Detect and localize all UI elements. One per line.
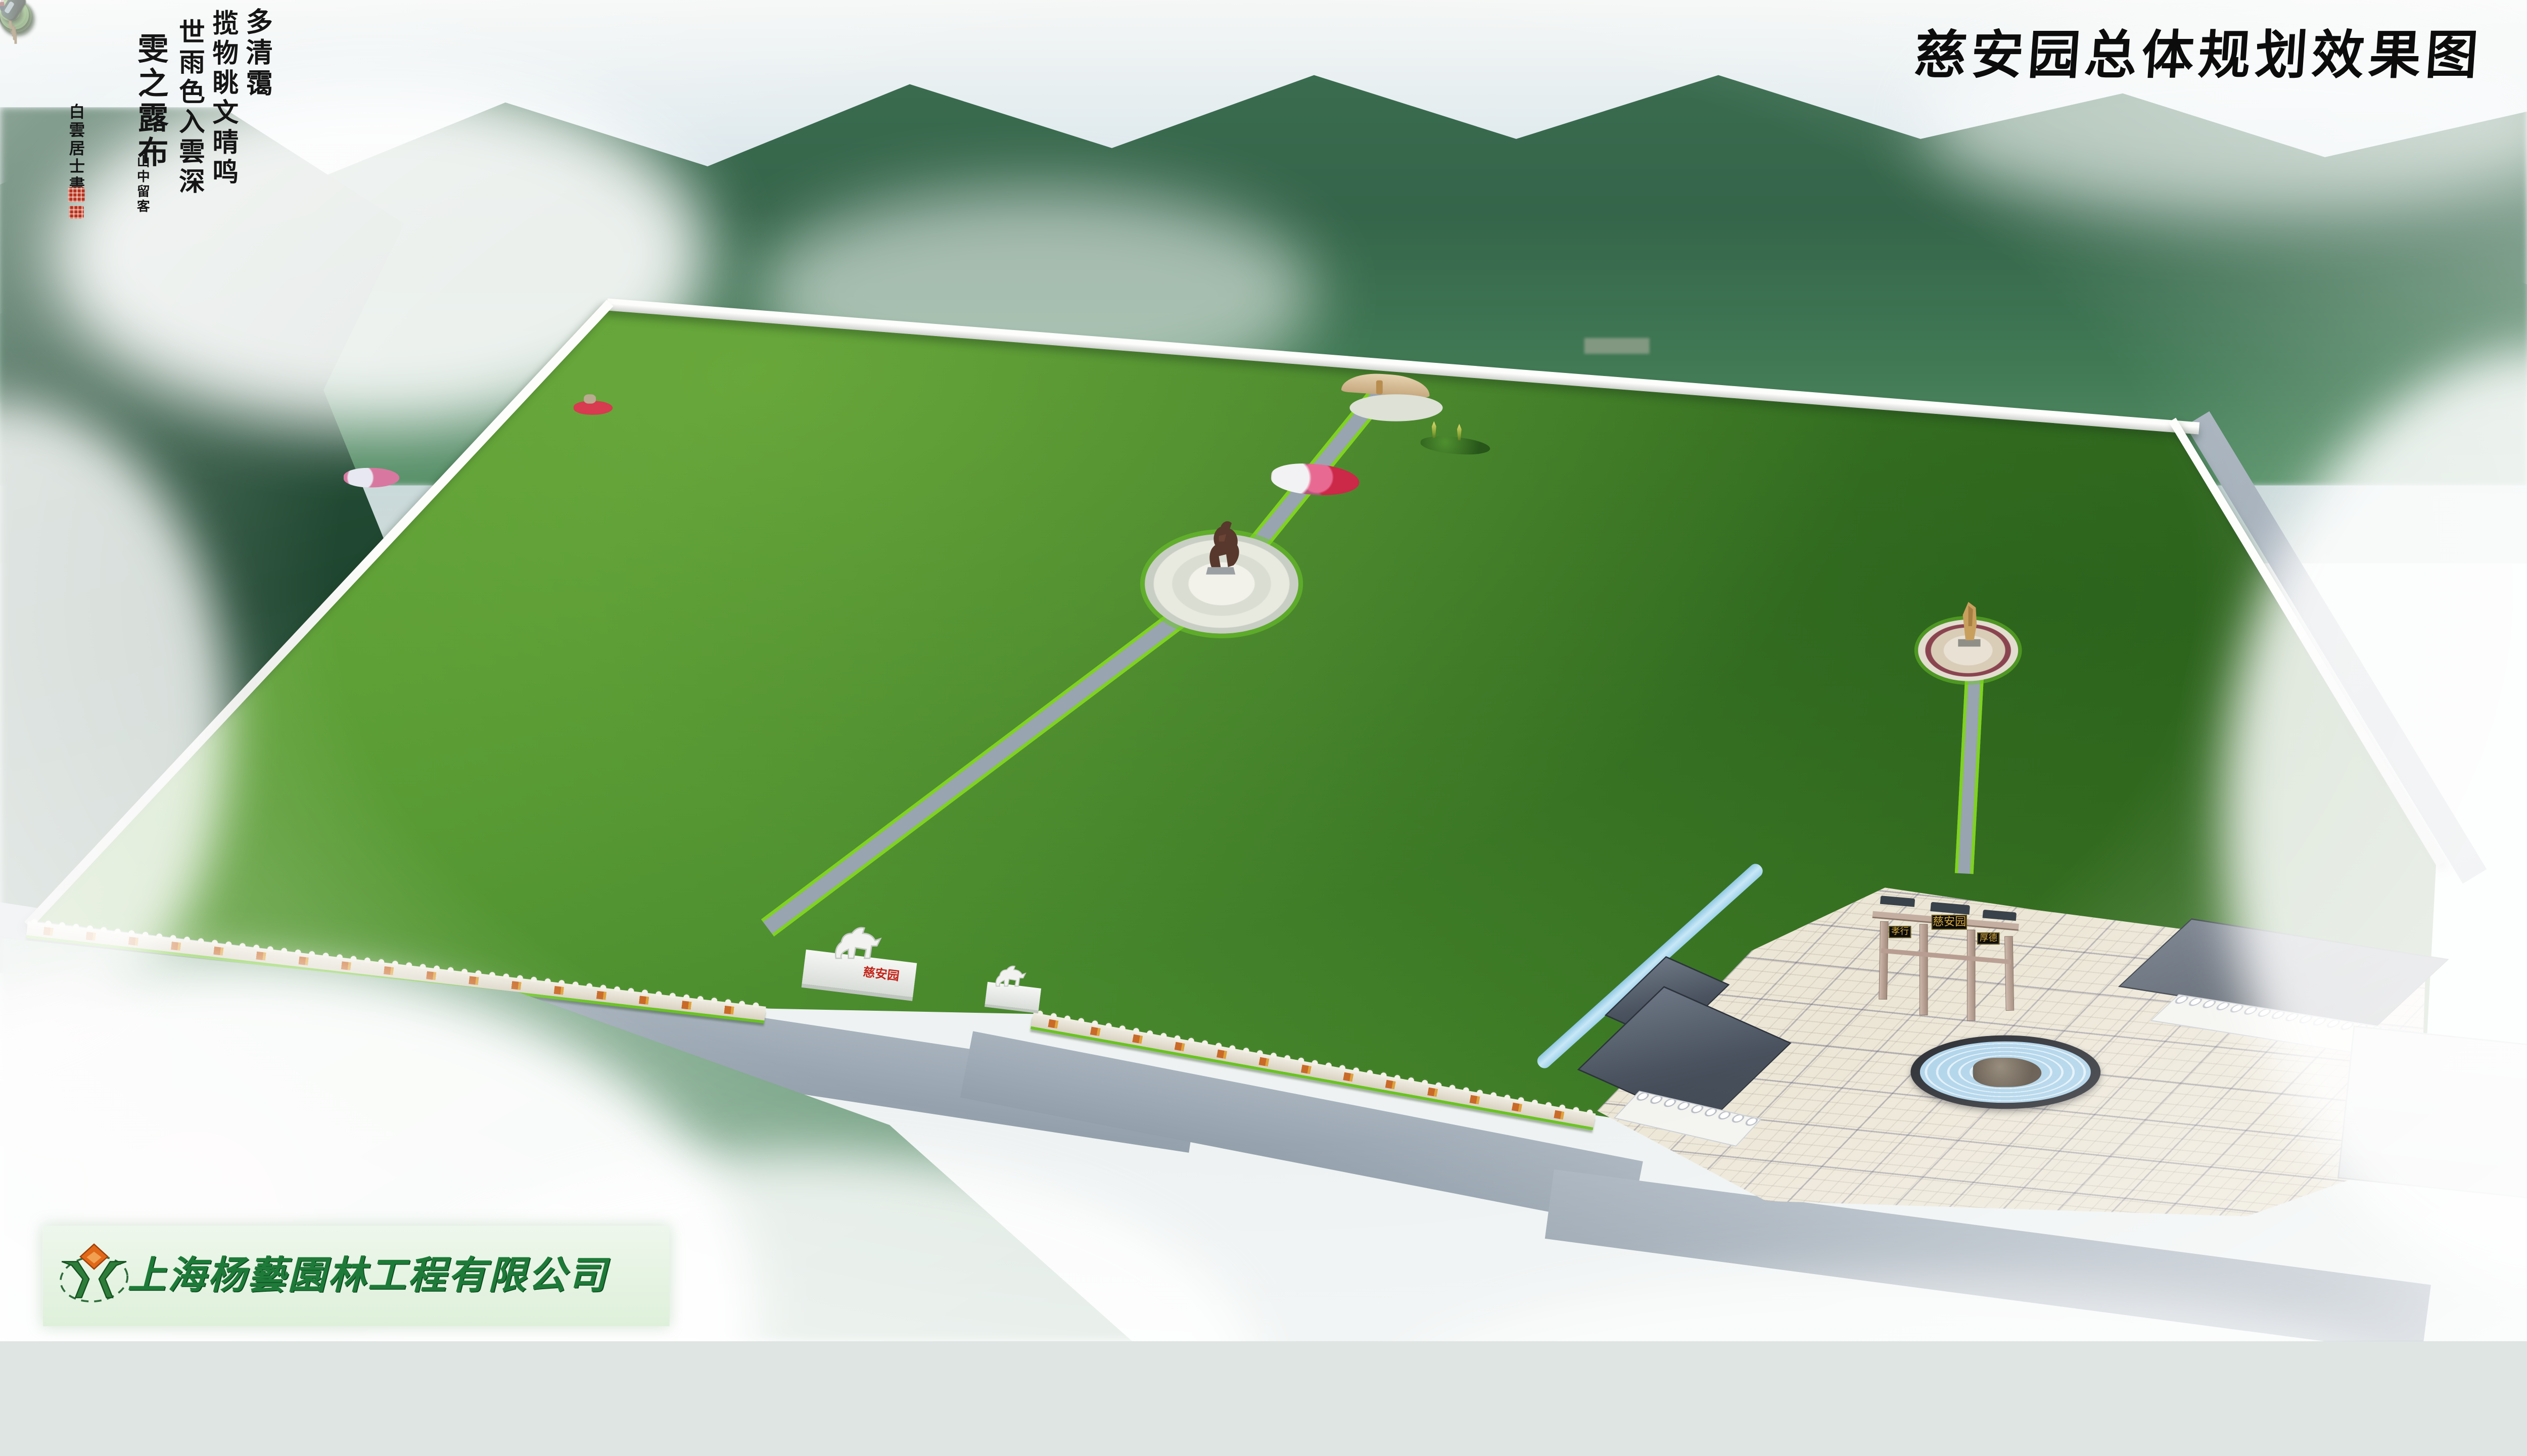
calligraphy-column: 世雨色入雲深 bbox=[171, 19, 209, 198]
tree-trunk bbox=[9, 18, 12, 27]
gate-pylon bbox=[1879, 921, 1889, 1000]
red-seal bbox=[68, 187, 84, 202]
bronze-equestrian-statue bbox=[1193, 518, 1249, 578]
calligraphy-column: 揽物眺文晴鸣 bbox=[205, 9, 243, 188]
memorial-apron bbox=[1349, 394, 1442, 421]
gate-eave bbox=[1983, 910, 2017, 921]
calligraphy-column: 多清霭 bbox=[238, 8, 276, 100]
pedestrian bbox=[0, 0, 4, 11]
company-logo bbox=[57, 1240, 131, 1309]
entrance-gate: 慈安园 孝行 厚德 bbox=[1867, 866, 2026, 1024]
company-bar: 上海杨藝園林工程有限公司 bbox=[43, 1226, 670, 1327]
gate-eave bbox=[1880, 896, 1915, 907]
fountain-pond bbox=[1910, 1036, 2100, 1109]
west-gate: 慈安园 bbox=[804, 920, 1046, 1051]
calligraphy-signature: 白雲居士書 bbox=[64, 103, 87, 194]
gate-eave bbox=[1931, 902, 1971, 915]
car-windshield bbox=[4, 1, 15, 14]
tree-trunk bbox=[12, 24, 15, 36]
horse-statue bbox=[830, 923, 884, 964]
ornamental-rock bbox=[584, 394, 596, 403]
horse-statue bbox=[993, 963, 1028, 990]
master-plan-rendering: 慈安园 孝行 厚德 慈安园 多清霭 揽物眺文晴鸣 世雨色入雲深 雯之露布 bbox=[0, 0, 2527, 1341]
company-name: 上海杨藝園林工程有限公司 bbox=[127, 1244, 608, 1299]
gate-pylon bbox=[1967, 930, 1976, 1021]
gate-plaque-right: 厚德 bbox=[1977, 932, 1999, 945]
gate-pylon bbox=[2004, 936, 2014, 1011]
calligraphy-poem: 多清霭 揽物眺文晴鸣 世雨色入雲深 雯之露布 山中留客 白雲居士書 bbox=[37, 5, 298, 312]
calligraphy-column: 雯之露布 bbox=[128, 32, 173, 170]
red-seal bbox=[69, 206, 83, 219]
gate-beam bbox=[1881, 948, 2011, 964]
calligraphy-annotation: 山中留客 bbox=[133, 155, 152, 214]
pond-rock bbox=[1973, 1057, 2041, 1087]
page-title: 慈安园总体规划效果图 bbox=[1912, 13, 2485, 88]
stone-monument bbox=[1951, 598, 1988, 649]
gate-plaque-center: 慈安园 bbox=[1932, 915, 1967, 929]
flower-bed bbox=[344, 468, 400, 488]
distant-ruins bbox=[1584, 338, 1650, 354]
gate-pylon bbox=[1920, 924, 1928, 1016]
memorial-statue bbox=[1376, 380, 1382, 394]
gate-plaque-left: 孝行 bbox=[1889, 926, 1911, 938]
